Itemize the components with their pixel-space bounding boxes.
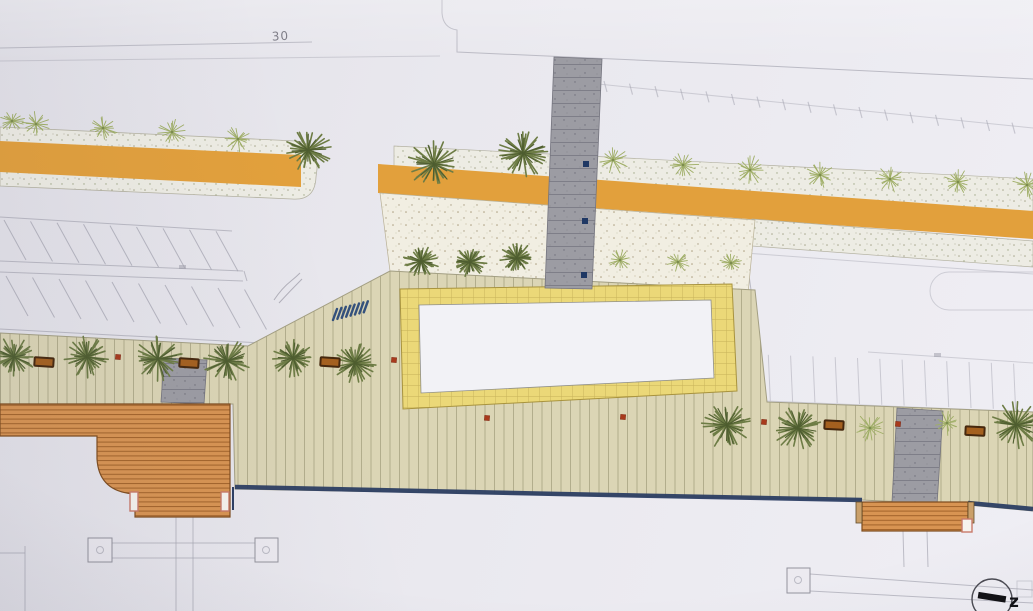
handwritten-scribble	[274, 273, 302, 303]
traffic-island-outline	[930, 272, 1033, 310]
lane-dash-ticks	[604, 81, 1015, 134]
timber-deck-left	[0, 404, 230, 517]
dimension-label-30: 30	[271, 29, 289, 44]
crosswalk-central	[545, 57, 602, 289]
marker-z-label: z	[1009, 592, 1019, 611]
road-curb-edge	[442, 0, 1033, 79]
site-plan-photo: 30 z	[0, 0, 1033, 611]
section-marker-z: z	[972, 579, 1032, 611]
illegible-small-label	[934, 353, 941, 357]
column-symbols	[88, 538, 810, 593]
plaza-inner-canopy	[419, 300, 714, 393]
road-area-lines	[0, 0, 1033, 128]
site-plan-drawing: 30 z	[0, 0, 1033, 611]
dimension-line-30	[0, 42, 312, 48]
timber-steps-right	[856, 502, 974, 531]
angled-parking-rows	[0, 217, 267, 330]
